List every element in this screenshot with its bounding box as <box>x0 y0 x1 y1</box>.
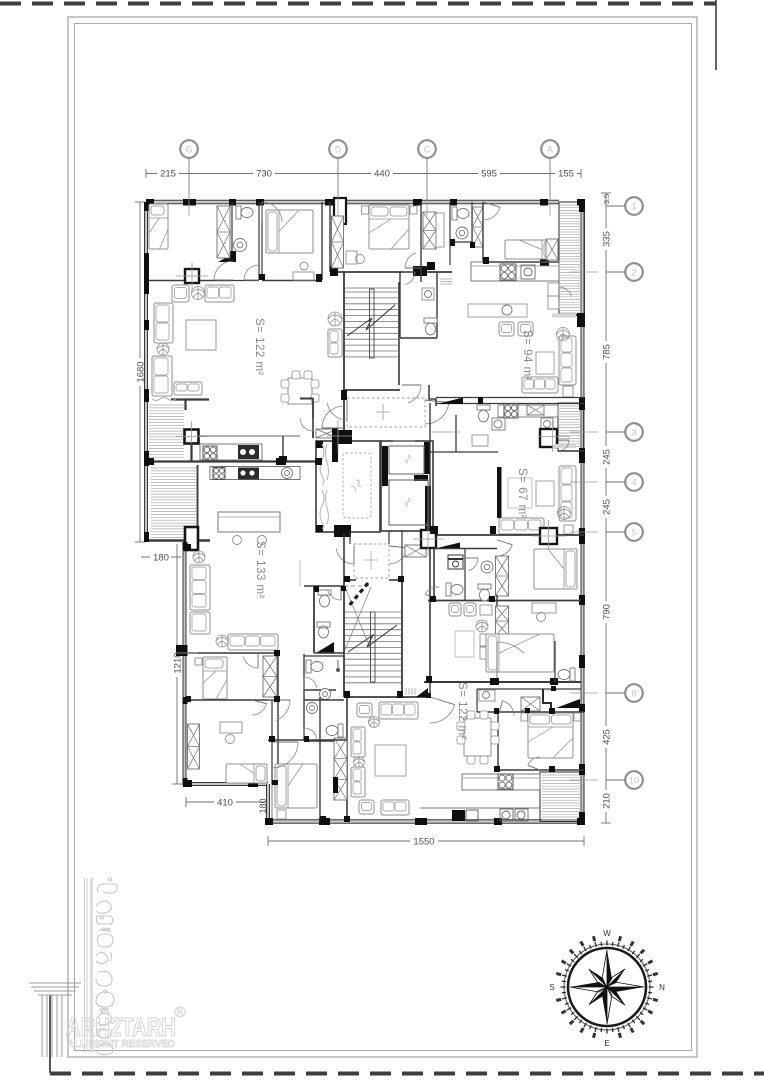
svg-text:155: 155 <box>558 169 574 180</box>
svg-text:W: W <box>603 929 611 938</box>
svg-text:G: G <box>185 145 192 155</box>
svg-text:N: N <box>659 983 665 992</box>
svg-text:730: 730 <box>256 169 272 180</box>
svg-text:A: A <box>547 145 553 155</box>
svg-text:210: 210 <box>602 793 613 809</box>
svg-text:S= 122 m²: S= 122 m² <box>456 682 468 740</box>
svg-text:2: 2 <box>631 268 636 278</box>
svg-text:410: 410 <box>217 798 233 809</box>
svg-text:425: 425 <box>602 729 613 745</box>
svg-text:10: 10 <box>629 776 639 786</box>
svg-text:790: 790 <box>602 604 613 620</box>
svg-text:440: 440 <box>374 169 390 180</box>
svg-text:5: 5 <box>631 528 636 538</box>
svg-text:3.5: 3.5 <box>602 194 611 204</box>
svg-text:245: 245 <box>602 449 613 465</box>
svg-text:C: C <box>424 145 431 155</box>
svg-text:335: 335 <box>602 231 613 247</box>
svg-text:1550: 1550 <box>413 837 434 848</box>
svg-text:1: 1 <box>631 202 636 212</box>
svg-text:S= 67 m²: S= 67 m² <box>516 468 528 519</box>
svg-text:215: 215 <box>160 169 176 180</box>
svg-text:S= 133 m²: S= 133 m² <box>254 541 266 599</box>
svg-text:E: E <box>604 1039 609 1048</box>
svg-text:ALL RIGHT RESERVED: ALL RIGHT RESERVED <box>67 1039 175 1050</box>
svg-text:S= 122 m²: S= 122 m² <box>253 318 265 376</box>
svg-text:D: D <box>335 145 342 155</box>
svg-text:8: 8 <box>631 689 636 699</box>
svg-text:S: S <box>549 983 554 992</box>
svg-text:ARH2TARH: ARH2TARH <box>66 1012 176 1042</box>
svg-text:245: 245 <box>602 499 613 515</box>
svg-text:180: 180 <box>153 553 169 564</box>
svg-text:3: 3 <box>631 428 636 438</box>
svg-text:785: 785 <box>602 344 613 360</box>
svg-text:S= 94 m²: S= 94 m² <box>521 330 533 381</box>
svg-text:595: 595 <box>481 169 497 180</box>
svg-text:R: R <box>177 1008 183 1017</box>
svg-text:4: 4 <box>631 478 636 488</box>
